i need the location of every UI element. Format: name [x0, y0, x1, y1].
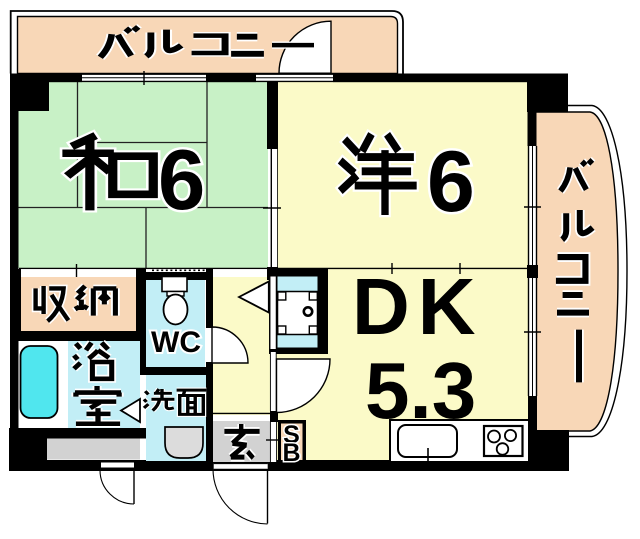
svg-text:6: 6	[158, 133, 205, 228]
svg-text:B: B	[282, 439, 300, 467]
svg-text:6: 6	[427, 134, 475, 230]
svg-text:WC: WC	[151, 326, 201, 359]
svg-text:DK: DK	[352, 262, 484, 351]
svg-text:5.3: 5.3	[365, 346, 476, 435]
